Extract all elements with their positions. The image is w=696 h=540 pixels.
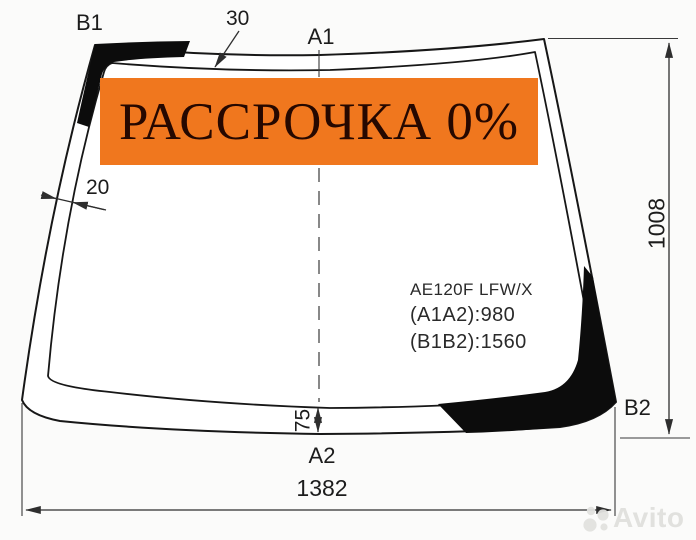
dim-20-value: 20 bbox=[86, 177, 109, 198]
watermark-brand: Avito bbox=[613, 502, 684, 534]
avito-watermark: Avito bbox=[583, 499, 684, 537]
dim-1382-value: 1382 bbox=[291, 477, 353, 500]
part-model: AE120F LFW/X bbox=[410, 277, 533, 302]
dim-75-value: 75 bbox=[293, 404, 314, 438]
label-b2: B2 bbox=[624, 397, 651, 419]
listing-photo-root: B1 A1 B2 A2 30 20 75 1008 1382 РАССРОЧКА… bbox=[0, 0, 696, 540]
label-b1: B1 bbox=[76, 12, 103, 34]
promo-banner: РАССРОЧКА 0% bbox=[100, 78, 538, 165]
promo-banner-text: РАССРОЧКА 0% bbox=[119, 92, 519, 152]
label-a2: A2 bbox=[304, 445, 340, 467]
part-b-distance: (B1B2):1560 bbox=[410, 329, 533, 356]
label-a1: A1 bbox=[303, 26, 339, 48]
dim-20-arrow-left bbox=[42, 195, 56, 198]
part-a-distance: (A1A2):980 bbox=[410, 302, 533, 329]
part-info-block: AE120F LFW/X (A1A2):980 (B1B2):1560 bbox=[410, 277, 533, 356]
avito-logo-icon bbox=[583, 499, 612, 537]
dim-30-value: 30 bbox=[226, 8, 249, 29]
dim-1008-value: 1008 bbox=[646, 194, 669, 254]
